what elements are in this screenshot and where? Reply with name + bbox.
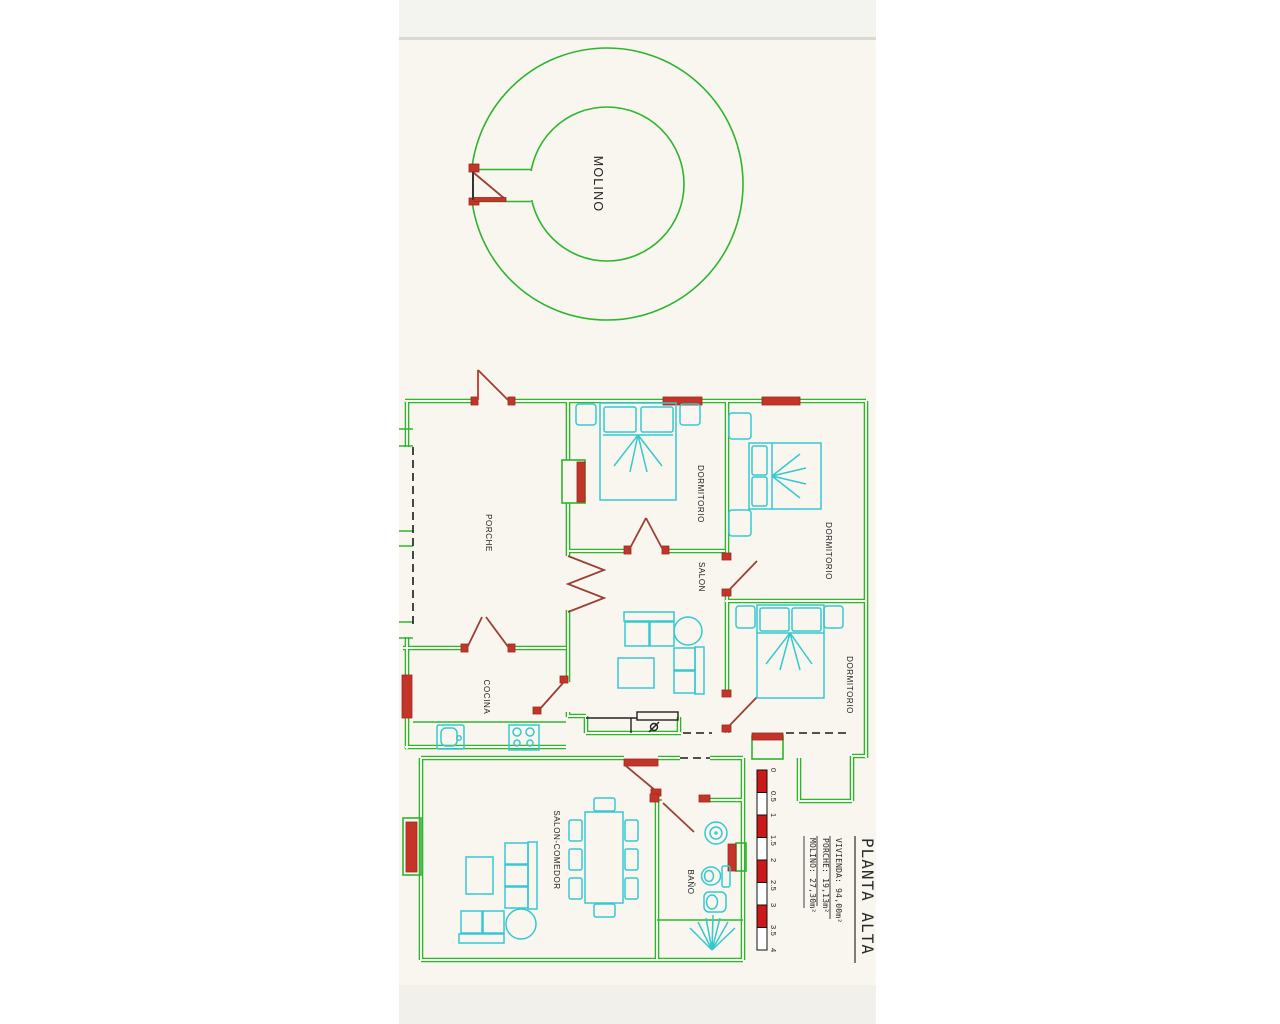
scale-bar: 0 0.5 1 1.5 2 2.5 3 3.5 4: [757, 768, 778, 952]
door-jamb: [722, 589, 731, 596]
top-band: [399, 0, 876, 37]
scale-tick-4: 4: [769, 948, 778, 952]
window-porche-niche: [577, 462, 585, 502]
plan-title: PLANTA ALTA: [858, 838, 877, 955]
room-label-molino: MOLINO: [591, 156, 605, 213]
scale-tick-15: 1.5: [769, 835, 778, 846]
door-jamb: [508, 397, 515, 405]
scale-tick-35: 3.5: [769, 925, 778, 936]
room-label-salon-comedor: SALON-COMEDOR: [552, 810, 561, 889]
area-molino: MOLINO: 27,30m²: [808, 838, 817, 913]
molino-door-sill: [474, 198, 506, 202]
scale-tick-3: 3: [769, 903, 778, 907]
scale-tick-0: 0: [769, 768, 778, 772]
area-porche: PORCHE: 19,13m²: [821, 838, 830, 913]
area-vivienda: VIVIENDA: 94,00m²: [834, 838, 843, 923]
room-label-cocina: COCINA: [482, 680, 491, 715]
door-jamb: [722, 725, 731, 732]
scale-tick-25: 2.5: [769, 880, 778, 891]
door-jamb: [461, 644, 468, 652]
room-label-porche: PORCHE: [484, 514, 493, 552]
room-label-dormitorio-3: DORMITORIO: [845, 656, 854, 714]
scale-tick-1: 1: [769, 813, 778, 817]
door-jamb: [722, 690, 731, 697]
room-label-salon: SALON: [697, 562, 706, 592]
door-jamb: [471, 397, 478, 405]
room-label-bano: BAÑO: [686, 869, 695, 894]
window-dorm2: [762, 397, 800, 405]
floorplan-page: MOLINO: [0, 0, 1280, 1024]
door-jamb: [650, 794, 659, 802]
top-divider: [399, 37, 876, 40]
room-label-dormitorio-1: DORMITORIO: [696, 465, 705, 523]
door-jamb: [722, 553, 731, 560]
room-label-dormitorio-2: DORMITORIO: [824, 522, 833, 580]
scale-tick-2: 2: [769, 858, 778, 862]
door-jamb: [560, 676, 568, 683]
entrance-door-leaf: [624, 759, 658, 766]
terrace-threshold: [752, 733, 783, 740]
window-cocina: [402, 675, 412, 718]
bottom-band: [399, 985, 876, 1024]
floorplan-drawing: MOLINO: [0, 0, 1280, 1024]
door-jamb: [508, 644, 515, 652]
molino-door-jamb: [469, 164, 479, 172]
door-jamb: [662, 546, 669, 554]
door-jamb: [699, 795, 710, 802]
scale-tick-05: 0.5: [769, 791, 778, 802]
window-comedor: [406, 822, 417, 872]
